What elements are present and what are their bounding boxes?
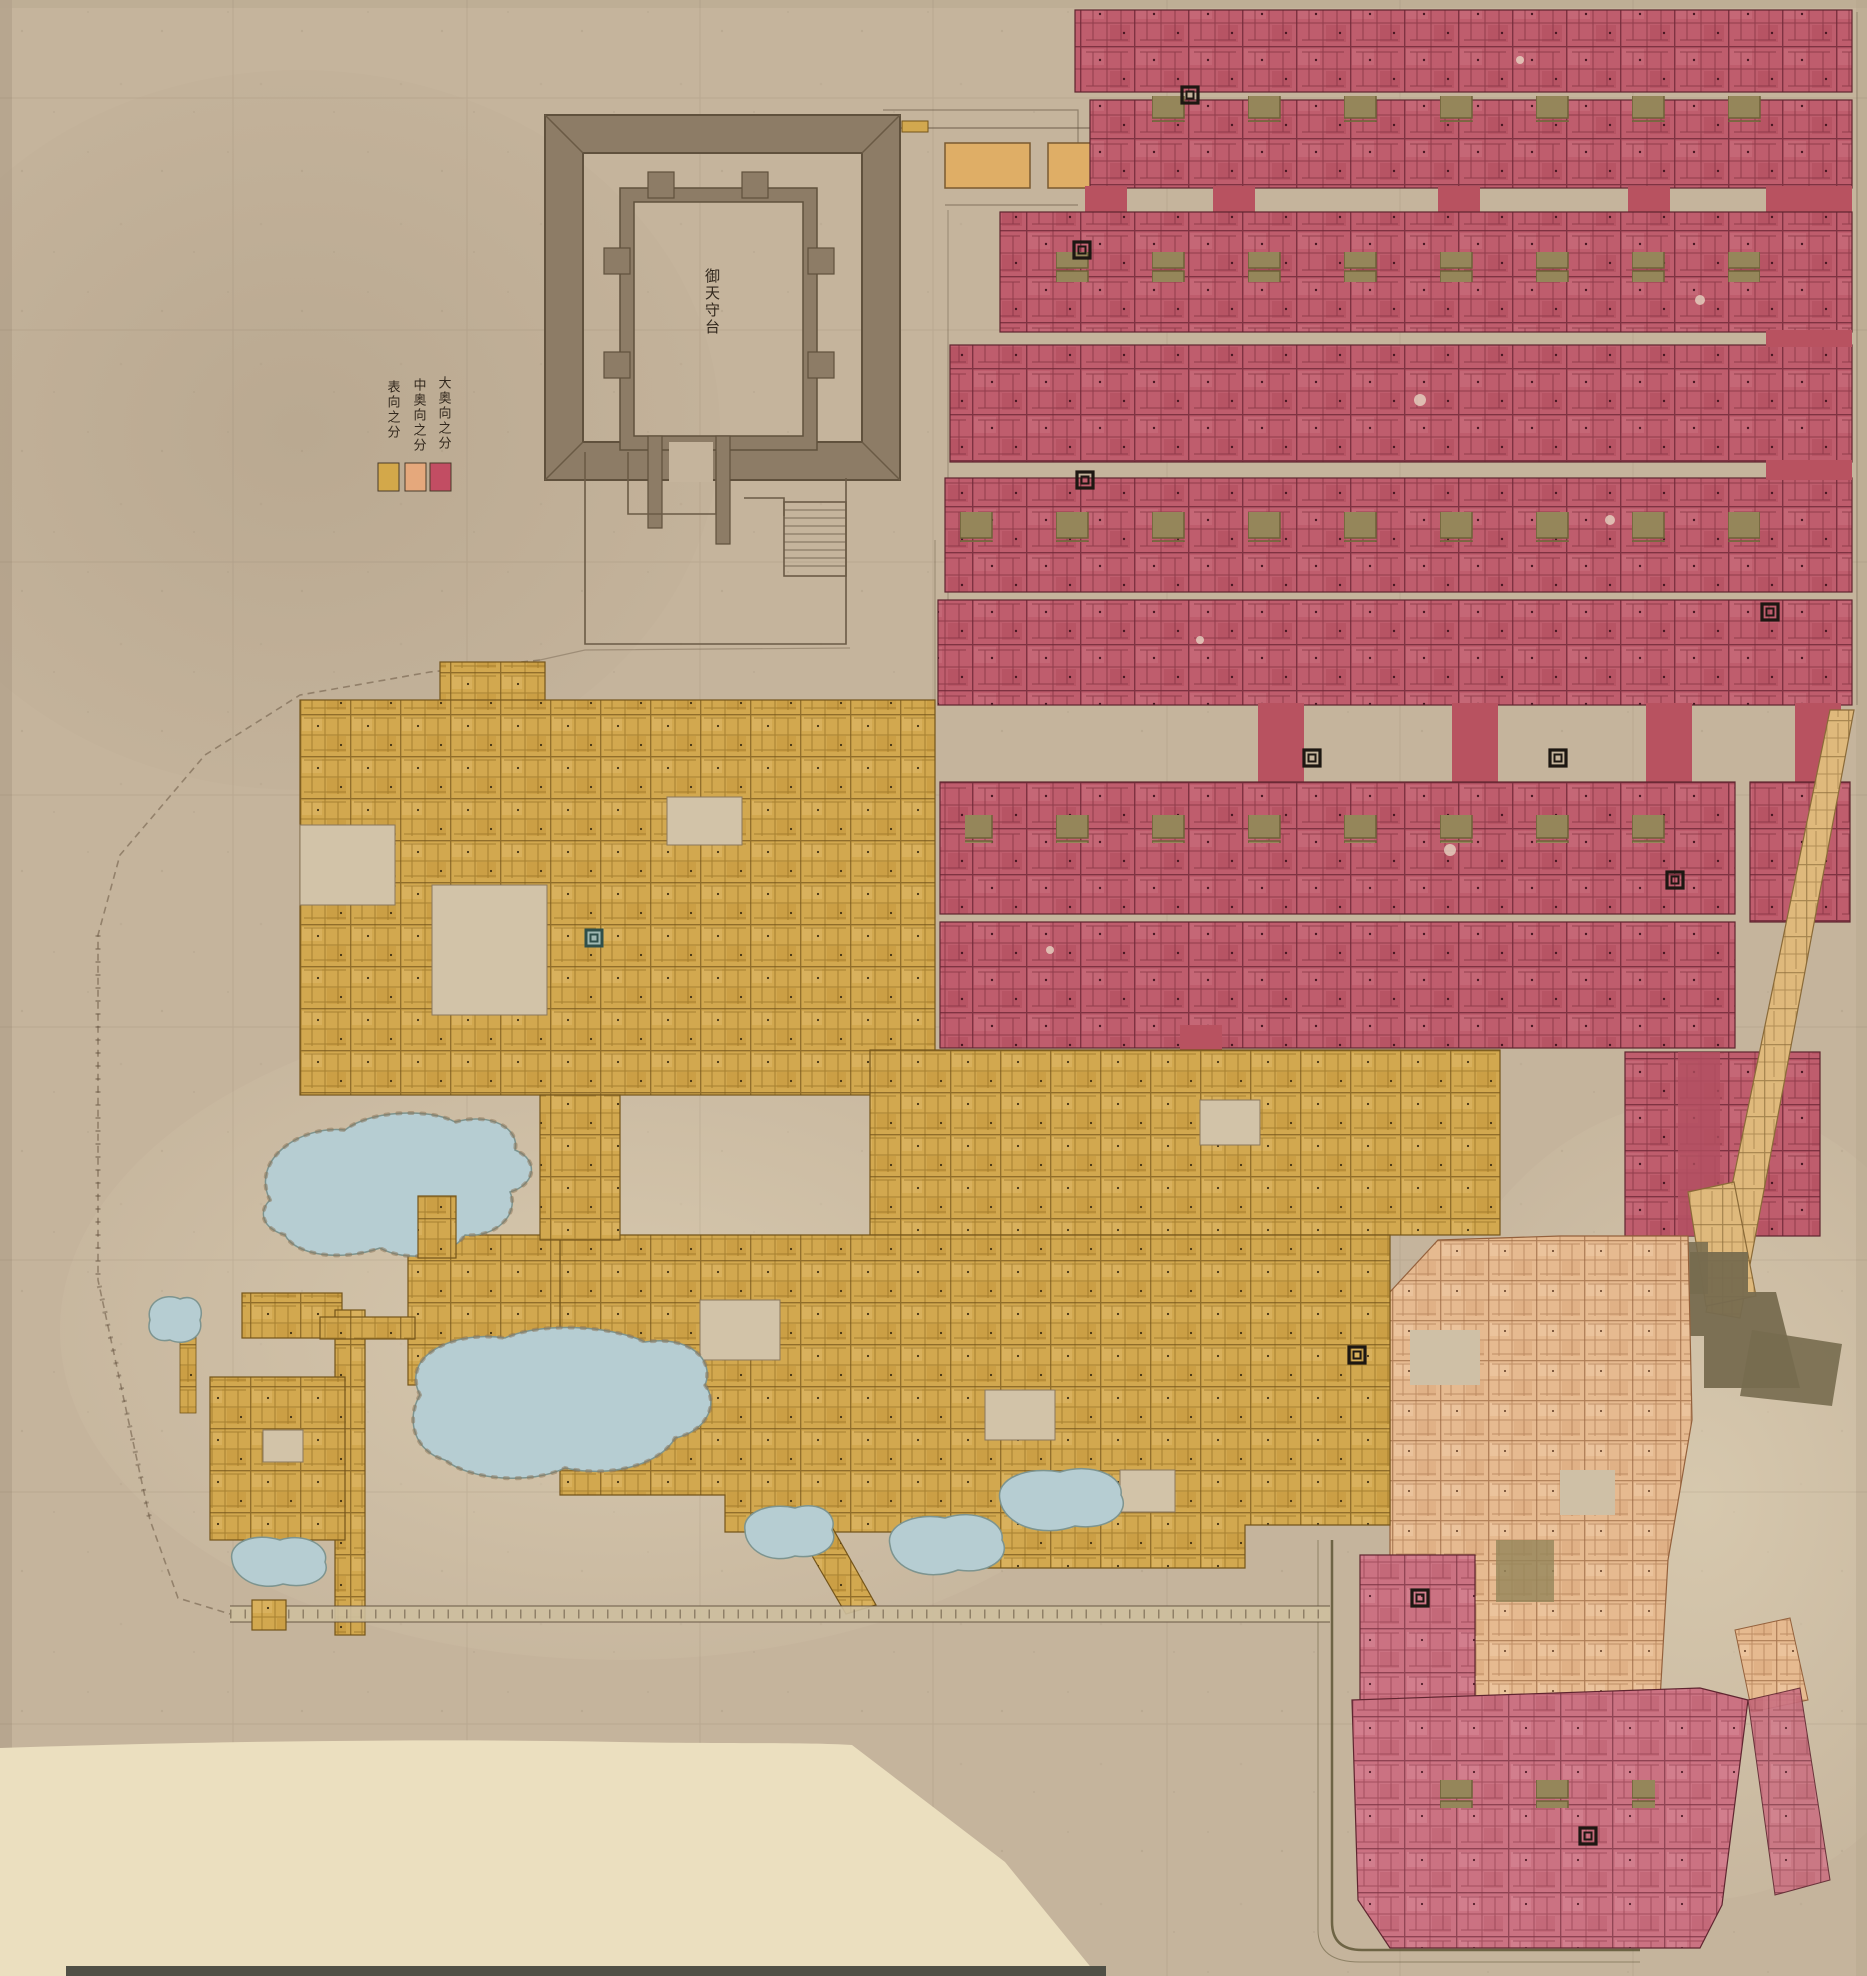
nakaoku-courtyard-2 bbox=[1560, 1470, 1615, 1515]
pond-small-mid bbox=[889, 1515, 1004, 1575]
legend: 表向之分 中奥向之分 大奥向之分 bbox=[378, 376, 451, 491]
south-red-west bbox=[1360, 1555, 1475, 1700]
legend-label-omote: 表向之分 bbox=[385, 380, 401, 440]
nakaoku-courtyard-1 bbox=[1410, 1330, 1480, 1385]
legend-label-ooku: 大奥向之分 bbox=[436, 376, 452, 451]
left-scan-edge bbox=[0, 0, 12, 1976]
legend-swatch-nakaoku bbox=[405, 463, 426, 491]
keep-label: 御天守台 bbox=[703, 268, 721, 336]
ooku-slots-b bbox=[1030, 252, 1760, 282]
ooku-connector-c bbox=[1766, 460, 1852, 480]
ooku-slots-c bbox=[960, 512, 1760, 542]
legend-swatch-omote bbox=[378, 463, 399, 491]
storehouse-west bbox=[945, 143, 1030, 188]
legend-label-nakaoku: 中奥向之分 bbox=[411, 378, 427, 453]
ooku-band-c2 bbox=[938, 600, 1852, 705]
omote-north-lobe bbox=[440, 662, 545, 704]
ooku-slots-a bbox=[1120, 96, 1780, 122]
plan-canvas: 御天守台 bbox=[0, 0, 1867, 1976]
nakaoku-olive-court bbox=[1496, 1540, 1554, 1602]
ooku-band-a1 bbox=[1075, 10, 1852, 92]
keep-gate-opening bbox=[669, 442, 713, 482]
ooku-band-b2 bbox=[950, 345, 1852, 462]
omote-link-corridor bbox=[540, 1095, 620, 1240]
legend-swatch-ooku bbox=[430, 463, 451, 491]
pond-small-east bbox=[999, 1469, 1123, 1531]
edo-castle-honmaru-plan: 御天守台 bbox=[0, 0, 1867, 1976]
ooku-connector-b bbox=[1766, 330, 1852, 347]
pond-island-teahouse bbox=[418, 1196, 456, 1258]
south-gate bbox=[252, 1600, 286, 1630]
pond-tiny-west bbox=[149, 1297, 201, 1343]
pond-small-west bbox=[745, 1506, 834, 1559]
keep-bridge bbox=[902, 121, 928, 132]
south-red-slots bbox=[1400, 1780, 1655, 1808]
omote-west-link bbox=[320, 1317, 415, 1339]
ooku-slots-d bbox=[965, 815, 1665, 843]
right-scan-edge bbox=[1856, 0, 1867, 1976]
bottom-dark-strip bbox=[66, 1966, 1106, 1976]
well-marker-teal bbox=[586, 930, 602, 946]
south-red-main bbox=[1352, 1688, 1748, 1948]
ooku-band-d2 bbox=[940, 922, 1735, 1048]
pond-sw bbox=[232, 1537, 327, 1586]
ooku-band-d1 bbox=[940, 782, 1735, 914]
omote-east-arm bbox=[870, 1050, 1500, 1235]
storehouses bbox=[945, 143, 1106, 188]
